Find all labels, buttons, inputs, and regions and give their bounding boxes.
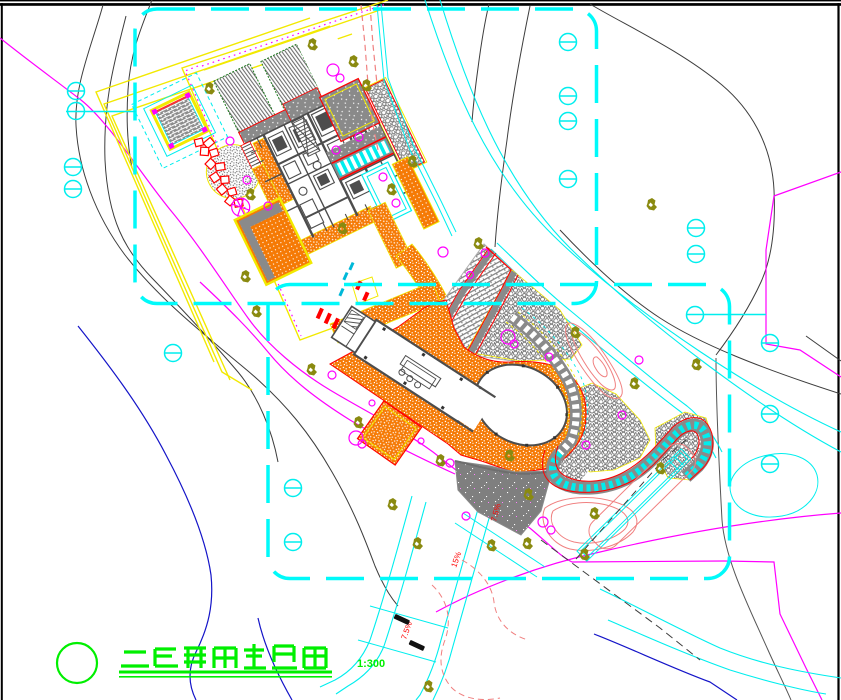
svg-text:1:300: 1:300 [357, 658, 385, 670]
